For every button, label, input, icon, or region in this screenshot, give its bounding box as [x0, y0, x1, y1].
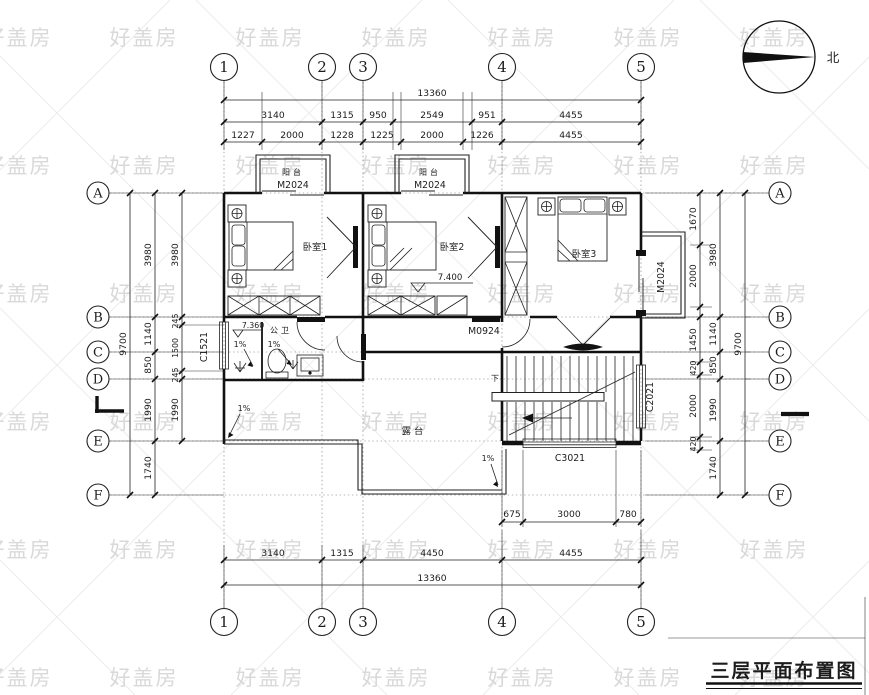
- grid-bubble-F-right: F: [775, 489, 784, 504]
- dim: 1225: [370, 130, 394, 141]
- dim: 1740: [708, 456, 719, 480]
- grid-bubble-F: F: [93, 489, 102, 504]
- level-bed2-value: 7.400: [438, 273, 463, 283]
- level-mark-bath: 7.360: [233, 321, 264, 337]
- dim: 950: [369, 110, 387, 121]
- dim: 1500: [171, 338, 180, 358]
- dim: 1315: [330, 110, 354, 121]
- dim: 3140: [261, 110, 285, 121]
- balcony2-door-label: M2024: [414, 180, 446, 191]
- dimensions-bottom: 675 3000 780 3140 1315 4450 4455 13360: [221, 450, 644, 592]
- dim: 245: [171, 368, 180, 383]
- bed3-label: 卧室3: [572, 248, 597, 260]
- grid-bubble-A: A: [92, 187, 103, 202]
- interior-window-bed1: [327, 217, 358, 278]
- grid-bubble-4b: 4: [497, 613, 507, 631]
- grid-bubble-2: 2: [317, 58, 327, 76]
- slope-label-4: 1%: [482, 454, 495, 463]
- grid-bubble-D: D: [93, 373, 103, 388]
- dim: 3980: [708, 243, 719, 267]
- grid-bubble-C: C: [93, 346, 103, 361]
- bed-2: [368, 205, 436, 287]
- slope-label-2: 1%: [268, 340, 281, 349]
- door-m0924-label: M0924: [468, 326, 500, 337]
- drawing-title: 三层平面布置图: [710, 659, 857, 682]
- dim: 1140: [143, 322, 154, 346]
- north-needle-icon: [743, 52, 815, 63]
- dim: 2549: [420, 110, 444, 121]
- toilet: [266, 349, 288, 378]
- dim: 3980: [170, 243, 181, 267]
- dim: 4455: [559, 548, 583, 559]
- watermark-layer: [0, 26, 809, 690]
- section-mark-left: [95, 396, 124, 413]
- grid-bubble-B: B: [93, 311, 103, 326]
- dimensions-top: 13360 3140 1315 950 2549 951 4455 1227 2…: [221, 88, 644, 150]
- dim: 1990: [170, 398, 181, 422]
- dim: 2000: [688, 264, 699, 288]
- grid-bubble-3b: 3: [358, 613, 368, 631]
- north-label: 北: [827, 50, 840, 65]
- dim: 4450: [420, 548, 444, 559]
- dim: 850: [143, 356, 154, 374]
- door-jamb: [636, 250, 646, 256]
- grid-bubble-E-right: E: [775, 435, 785, 450]
- dim-top-total: 13360: [417, 88, 446, 99]
- bath-label: 公卫: [270, 326, 292, 335]
- window-c3021: [523, 439, 616, 448]
- terrace-label: 露台: [402, 425, 427, 437]
- drawing-sheet: 好盖房 13360 3140 1315 950 2549 951 4455 12…: [0, 0, 869, 695]
- bed2-label: 卧室2: [440, 241, 465, 253]
- dim: 2000: [688, 394, 699, 418]
- dim: 1226: [470, 130, 494, 141]
- door-bath-2: [337, 334, 366, 362]
- window-c2021-label: C2021: [645, 382, 656, 412]
- dim: 2000: [420, 130, 444, 141]
- slope-label-3: 1%: [238, 404, 251, 413]
- dim: 3140: [261, 548, 285, 559]
- floor-plan: 7.360 7.400 阳台 M2024 阳台 M2024 卧室1 卧室2 卧室…: [95, 155, 809, 494]
- dim: 245: [171, 314, 180, 329]
- grid-bubble-1: 1: [219, 58, 229, 76]
- dim-right-total: 9700: [733, 332, 744, 356]
- highwindow-symbol: [557, 318, 610, 351]
- dim: 1140: [708, 322, 719, 346]
- grid-bubble-D-right: D: [775, 373, 785, 388]
- title-block: 三层平面布置图: [668, 597, 865, 695]
- dim: 850: [708, 356, 719, 374]
- dim: 1228: [330, 130, 354, 141]
- balcony2-label: 阳台: [419, 167, 441, 177]
- dim: 951: [478, 110, 496, 121]
- dim: 1740: [143, 456, 154, 480]
- balcony1-door-label: M2024: [277, 180, 309, 191]
- dim: 4455: [559, 130, 583, 141]
- dim: 4455: [559, 110, 583, 121]
- grid-bubble-5b: 5: [636, 613, 646, 631]
- door-m2024-side-label: M2024: [656, 261, 667, 293]
- dim: 420: [689, 361, 698, 376]
- grid-bubble-B-right: B: [775, 311, 785, 326]
- grid-bubble-E: E: [93, 435, 103, 450]
- terrace-parapet: [224, 440, 506, 494]
- stair-down-label: 下: [491, 374, 499, 383]
- grid-bubble-3: 3: [358, 58, 368, 76]
- dim: 1990: [143, 398, 154, 422]
- bed1-label: 卧室1: [303, 241, 328, 253]
- slope-label-1: 1%: [234, 340, 247, 349]
- level-bath-value: 7.360: [242, 321, 264, 330]
- grid-bubble-4: 4: [497, 58, 507, 76]
- dim: 2000: [280, 130, 304, 141]
- stair-handrail: [492, 393, 604, 402]
- window-c3021-label: C3021: [555, 453, 585, 464]
- bed-1: [228, 205, 293, 287]
- grid-bubble-1b: 1: [219, 613, 229, 631]
- door-bath-1: [297, 317, 325, 350]
- grid-bubble-2b: 2: [317, 613, 327, 631]
- dim: 1990: [708, 398, 719, 422]
- dim: 3000: [557, 509, 581, 520]
- interior-window-bed2: [468, 217, 500, 278]
- dim: 1227: [231, 130, 255, 141]
- dim: 420: [689, 437, 698, 452]
- dim: 1670: [688, 207, 699, 231]
- balcony1-label: 阳台: [282, 167, 304, 177]
- dim: 1450: [688, 328, 699, 352]
- grid-bubble-5: 5: [636, 58, 646, 76]
- grid-bubble-A-right: A: [774, 187, 785, 202]
- dim: 1315: [330, 548, 354, 559]
- dim: 675: [503, 509, 521, 520]
- grid-bubble-C-right: C: [775, 346, 785, 361]
- window-c1521-label: C1521: [199, 332, 210, 362]
- dim: 780: [619, 509, 637, 520]
- dim-left-total: 9700: [118, 332, 129, 356]
- dim-bottom-total: 13360: [417, 573, 446, 584]
- door-jamb: [636, 310, 646, 316]
- dim: 3980: [143, 243, 154, 267]
